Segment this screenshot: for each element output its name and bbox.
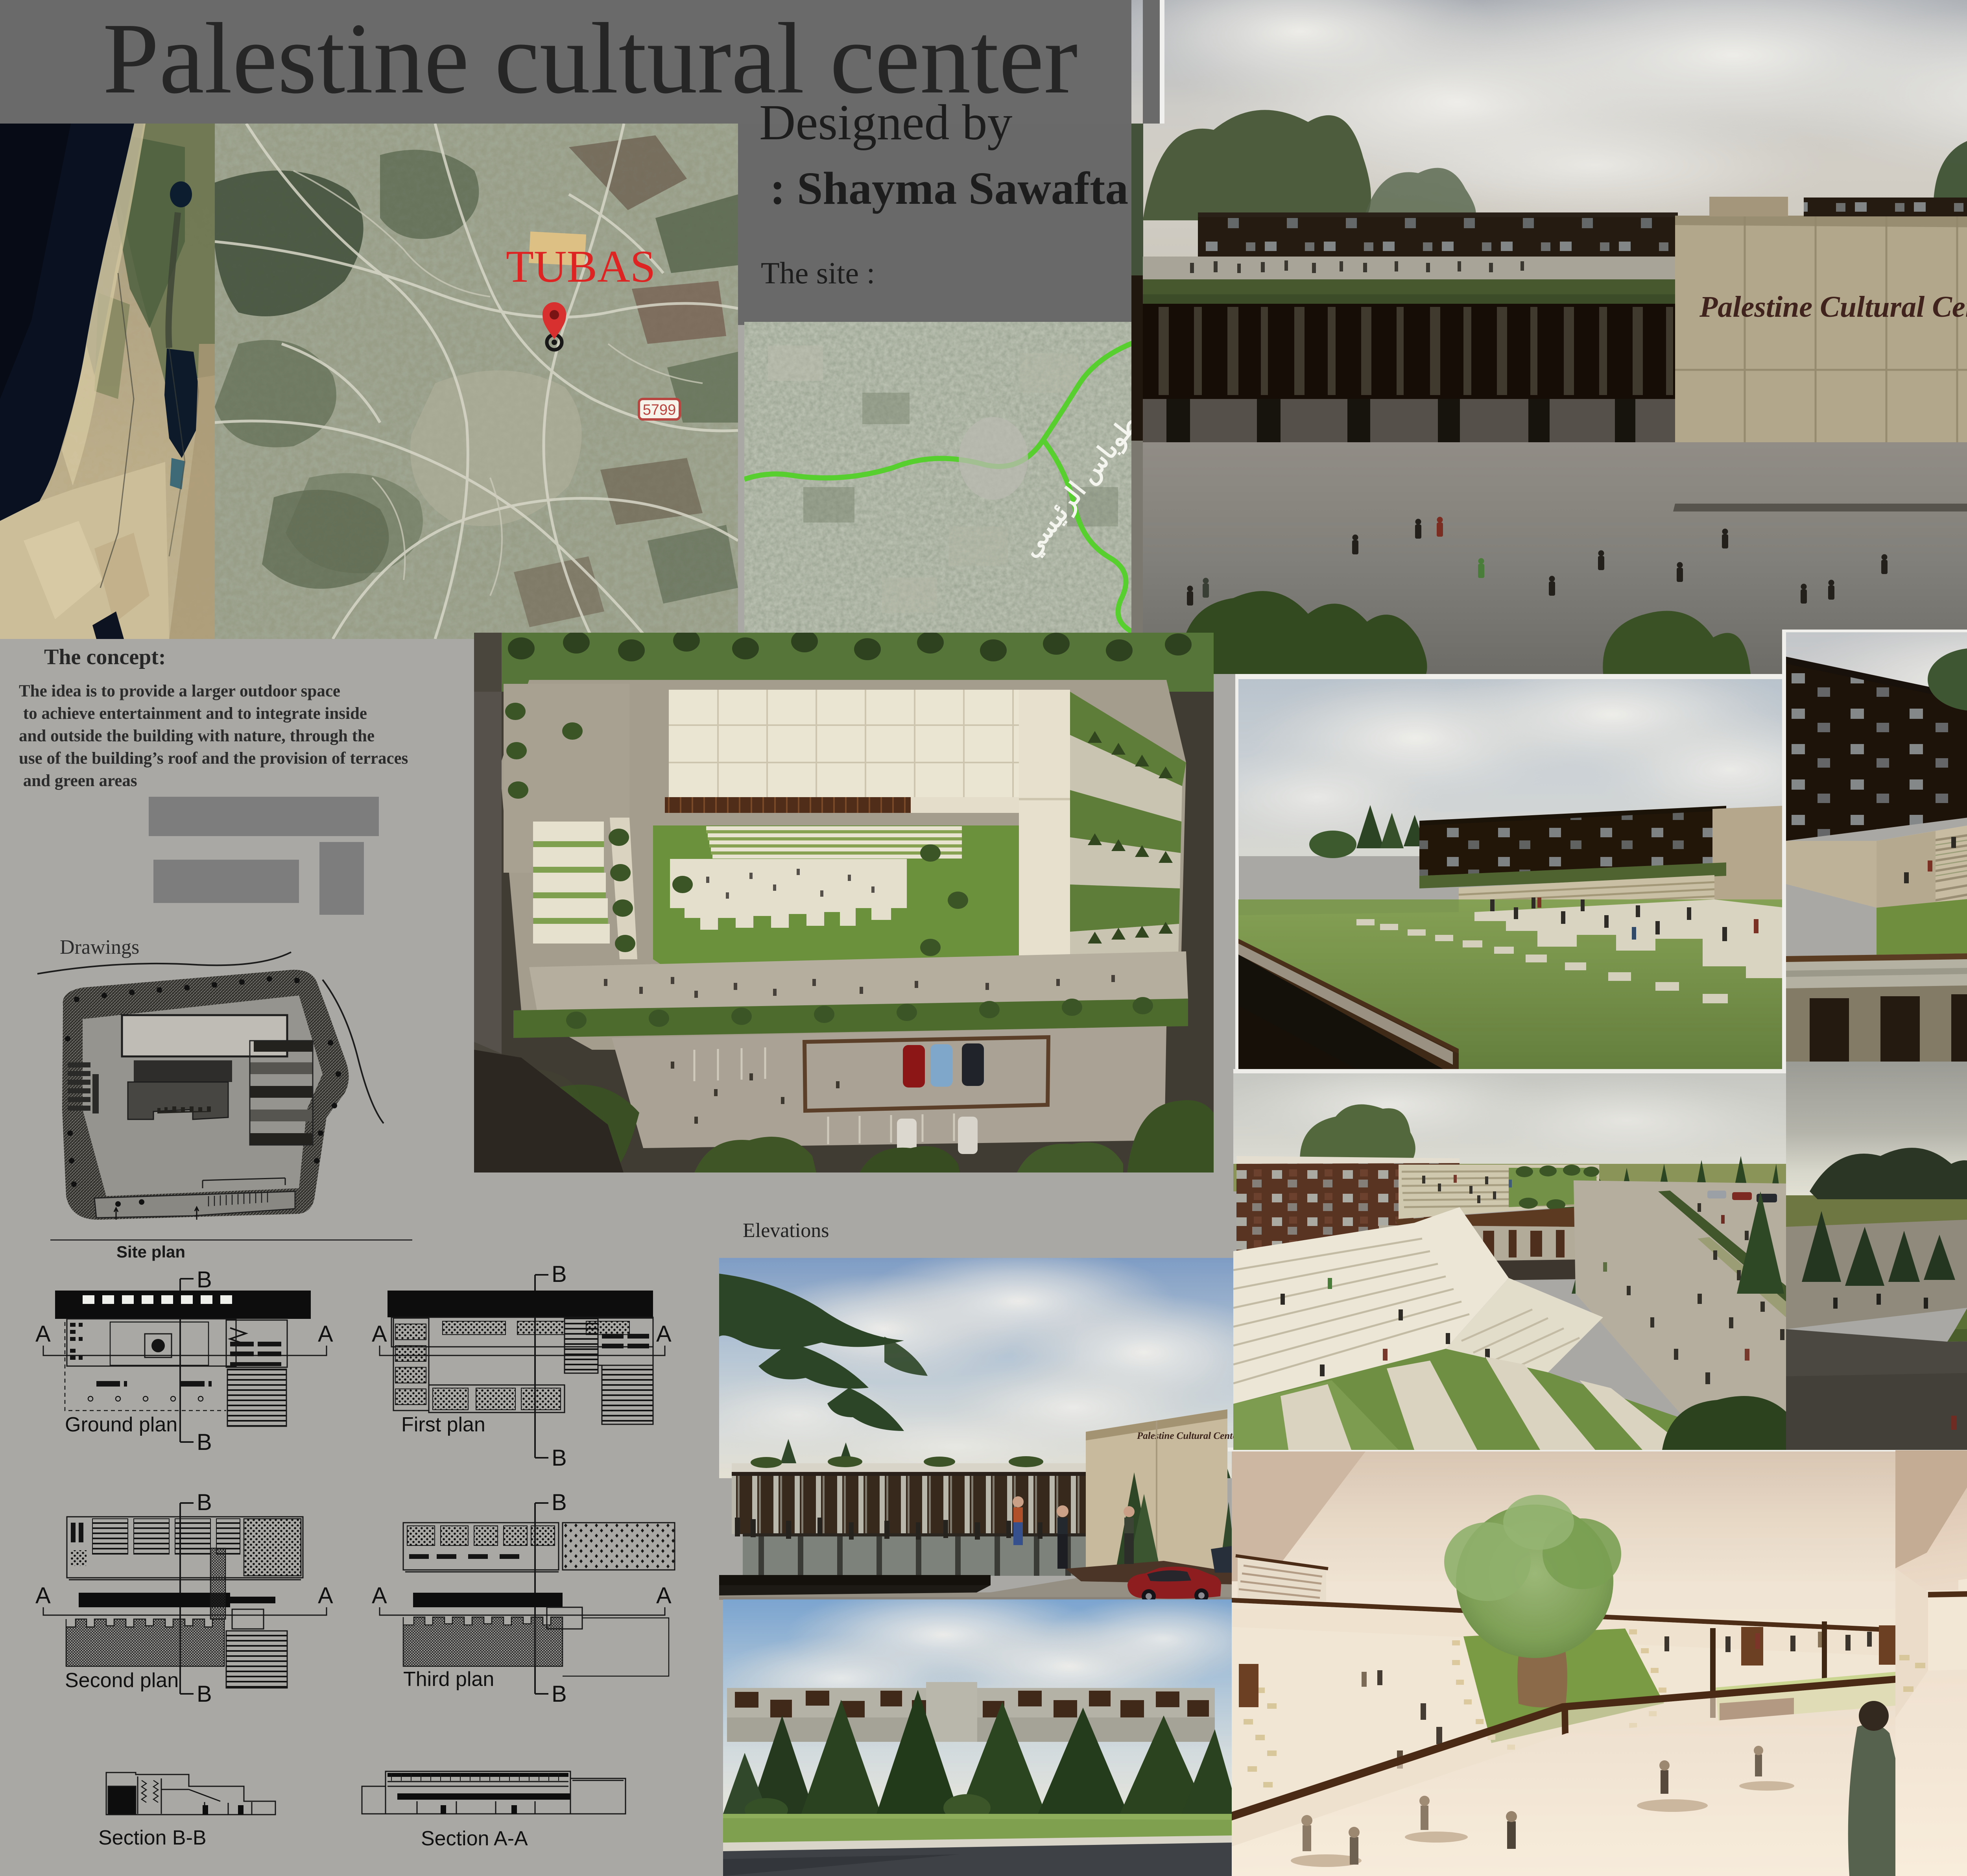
- svg-text:Palestine Cultural Center: Palestine Cultural Center: [1137, 1431, 1237, 1441]
- svg-text:B: B: [197, 1681, 212, 1707]
- svg-text:A: A: [35, 1321, 51, 1347]
- svg-text:Third plan: Third plan: [403, 1668, 494, 1691]
- svg-text:Second plan: Second plan: [65, 1669, 179, 1692]
- svg-text:Section A-A: Section A-A: [421, 1827, 528, 1850]
- svg-text:A: A: [35, 1583, 51, 1608]
- svg-text:Section B-B: Section B-B: [98, 1826, 207, 1849]
- svg-text:B: B: [197, 1267, 212, 1293]
- svg-text:A: A: [656, 1321, 672, 1347]
- svg-text:Palestine Cultural Center: Palestine Cultural Center: [1699, 290, 1967, 323]
- svg-text:A: A: [318, 1321, 333, 1347]
- svg-text:Ground plan: Ground plan: [65, 1413, 177, 1436]
- svg-text:A: A: [656, 1583, 672, 1608]
- svg-text:B: B: [197, 1490, 212, 1515]
- svg-text:B: B: [552, 1445, 567, 1471]
- svg-text:A: A: [372, 1321, 387, 1347]
- svg-text:B: B: [197, 1429, 212, 1455]
- svg-text:A: A: [318, 1583, 333, 1608]
- svg-text:B: B: [552, 1261, 567, 1287]
- svg-text:A: A: [372, 1583, 387, 1608]
- svg-text:B: B: [552, 1681, 567, 1707]
- svg-text:TUBAS: TUBAS: [506, 242, 655, 292]
- svg-text:First plan: First plan: [401, 1413, 485, 1436]
- svg-text:5799: 5799: [643, 402, 676, 418]
- svg-text:B: B: [552, 1490, 567, 1515]
